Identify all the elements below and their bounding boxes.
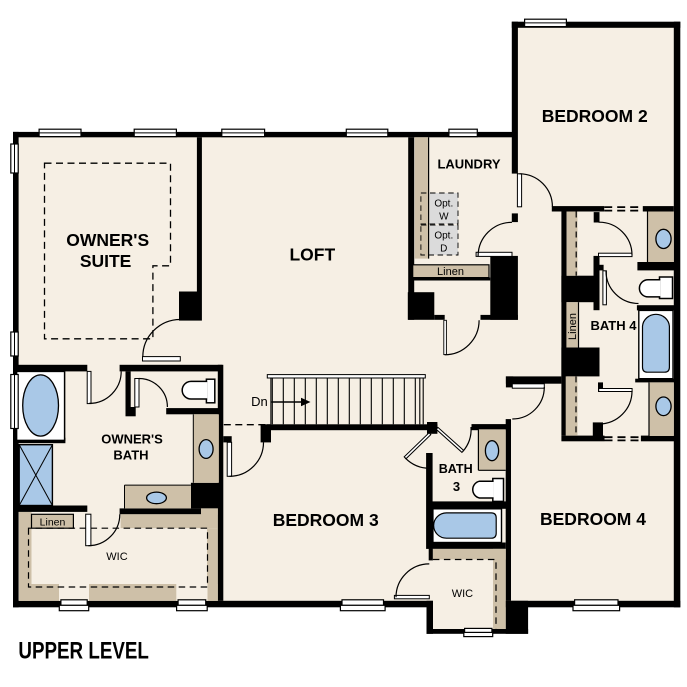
svg-text:UPPER LEVEL: UPPER LEVEL [18,638,149,665]
svg-text:BATH 4: BATH 4 [591,318,638,333]
svg-text:WIC: WIC [452,588,473,600]
svg-text:OWNER'S: OWNER'S [101,432,163,447]
svg-text:3: 3 [453,479,460,494]
svg-text:Opt.: Opt. [434,198,453,209]
svg-text:BATH: BATH [113,448,148,463]
svg-text:BATH: BATH [439,461,473,476]
svg-text:Linen: Linen [40,516,66,528]
svg-text:SUITE: SUITE [80,251,132,271]
svg-text:LAUNDRY: LAUNDRY [437,156,500,171]
svg-text:WIC: WIC [106,551,127,563]
svg-text:Linen: Linen [567,313,579,340]
svg-text:Linen: Linen [437,266,464,278]
svg-text:BEDROOM 2: BEDROOM 2 [542,106,648,126]
svg-text:LOFT: LOFT [289,245,335,265]
svg-text:OWNER'S: OWNER'S [66,230,149,250]
svg-text:W: W [439,212,449,223]
svg-text:Opt.: Opt. [434,230,453,241]
svg-text:Dn: Dn [251,394,268,409]
svg-text:D: D [440,244,447,255]
svg-text:BEDROOM 4: BEDROOM 4 [540,509,646,529]
svg-text:BEDROOM 3: BEDROOM 3 [273,510,379,530]
